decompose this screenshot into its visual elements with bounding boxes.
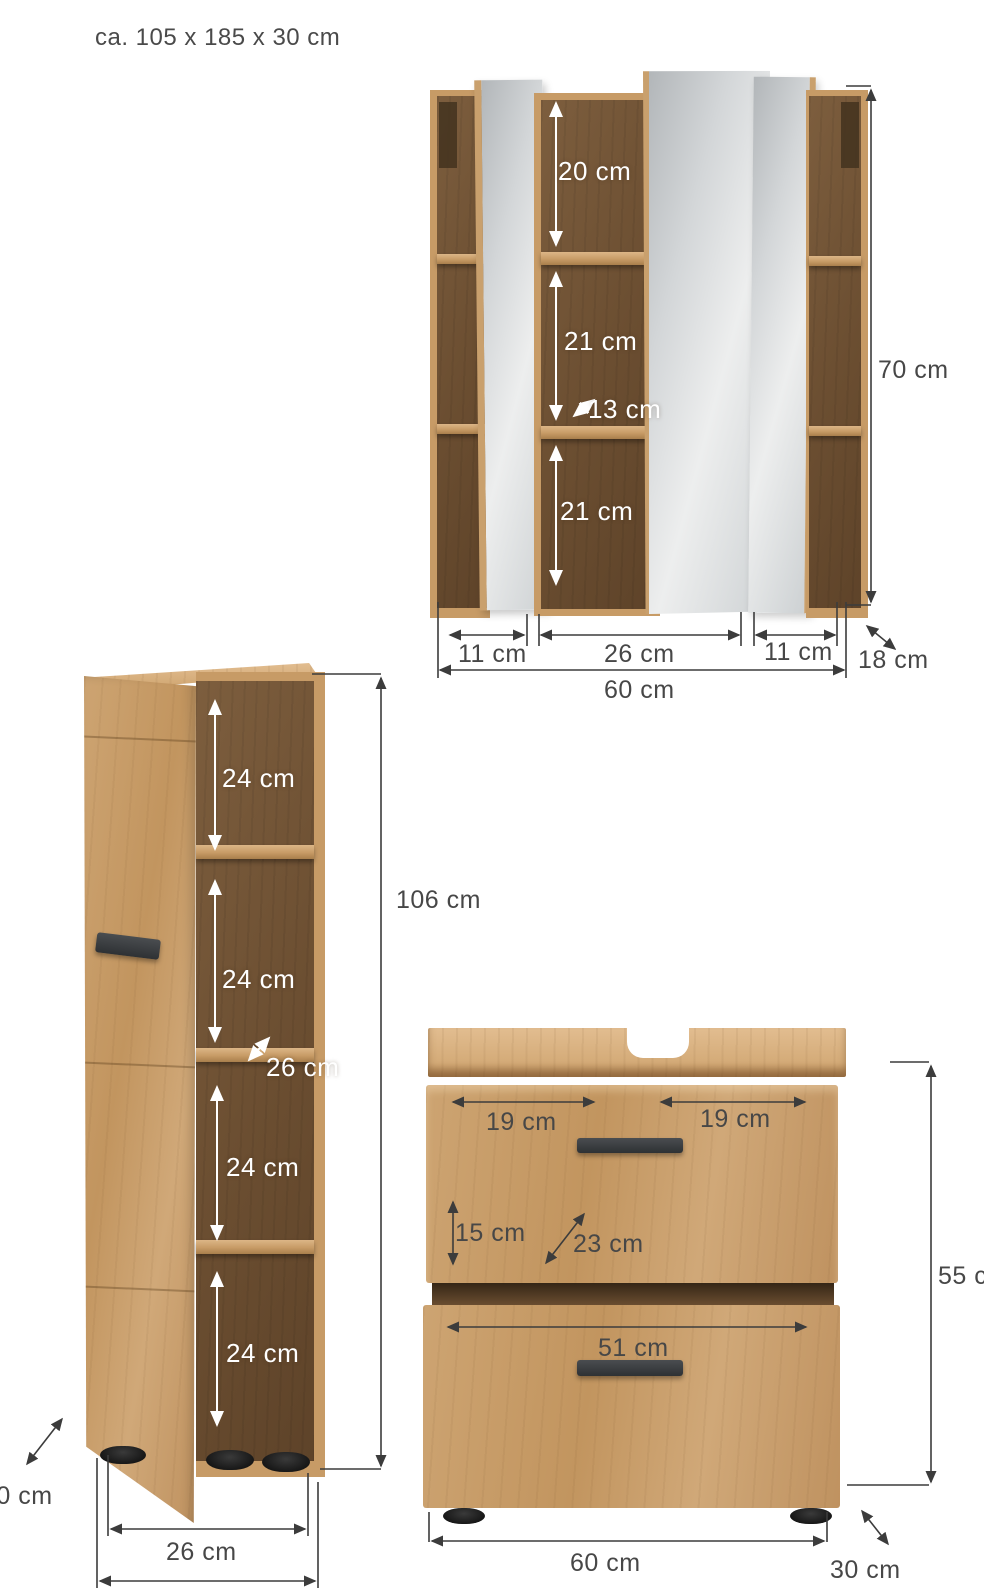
mc-comp-bottom-label: 21 cm [560, 496, 633, 527]
mc-depth-label: 18 cm [858, 646, 929, 675]
v-top-left-label: 19 cm [486, 1108, 557, 1137]
cabinet-foot [206, 1450, 254, 1470]
mc-interior-depth-label: 13 cm [588, 394, 661, 425]
tall-cabinet-door [84, 676, 196, 1523]
sink-cutout [627, 1028, 689, 1058]
v-extension-lines [429, 1512, 827, 1542]
shelf [541, 252, 653, 265]
v-interior-depth-label: 23 cm [573, 1230, 644, 1259]
tc-comp1-label: 24 cm [222, 763, 295, 794]
shelf [541, 426, 653, 439]
hinge-shadow [841, 102, 859, 168]
v-top-right-label: 19 cm [700, 1105, 771, 1134]
shelf [196, 1240, 314, 1254]
v-drawer-width-label: 51 cm [598, 1334, 669, 1363]
mc-comp-top-label: 20 cm [558, 156, 631, 187]
v-height-label: 55 cm [938, 1262, 984, 1291]
v-drawer-height-label: 15 cm [455, 1219, 526, 1248]
tc-interior-width-label: 26 cm [266, 1052, 339, 1083]
v-depth-arrow [862, 1511, 888, 1544]
cabinet-foot [790, 1508, 832, 1524]
shelf [196, 845, 314, 859]
tc-comp3-label: 24 cm [226, 1152, 299, 1183]
tc-width-label: 26 cm [166, 1538, 237, 1567]
tc-depth-arrow [27, 1419, 62, 1464]
mirror-cabinet-right-carcass [806, 90, 868, 618]
door-groove [84, 736, 196, 743]
cabinet-foot [100, 1446, 146, 1464]
shelf [809, 256, 861, 266]
door-groove [84, 1286, 196, 1293]
cabinet-foot [443, 1508, 485, 1524]
furniture-dimension-diagram: ca. 105 x 185 x 30 cm 20 cm 21 cm 13 cm … [0, 0, 984, 1590]
mc-width-right-label: 11 cm [764, 638, 833, 667]
mc-width-center-label: 26 cm [604, 640, 675, 669]
tc-height-label: 106 cm [396, 886, 481, 915]
vanity-upper-drawer-handle [577, 1138, 683, 1153]
overall-dimensions-label: ca. 105 x 185 x 30 cm [95, 24, 340, 52]
mc-total-width-label: 60 cm [604, 676, 675, 705]
shelf [809, 426, 861, 436]
door-groove [84, 1062, 196, 1069]
cabinet-foot [262, 1452, 310, 1472]
tc-comp2-label: 24 cm [222, 964, 295, 995]
hinge-shadow [439, 102, 457, 168]
v-height-leader [847, 1062, 929, 1485]
vanity-drawer-gap [432, 1283, 834, 1305]
mc-width-left-label: 11 cm [458, 640, 527, 669]
v-width-label: 60 cm [570, 1549, 641, 1578]
v-depth-label: 30 cm [830, 1556, 901, 1585]
tc-depth-label: 30 cm [0, 1482, 53, 1511]
tc-comp4-label: 24 cm [226, 1338, 299, 1369]
mc-height-label: 70 cm [878, 356, 949, 385]
mc-comp-mid-label: 21 cm [564, 326, 637, 357]
